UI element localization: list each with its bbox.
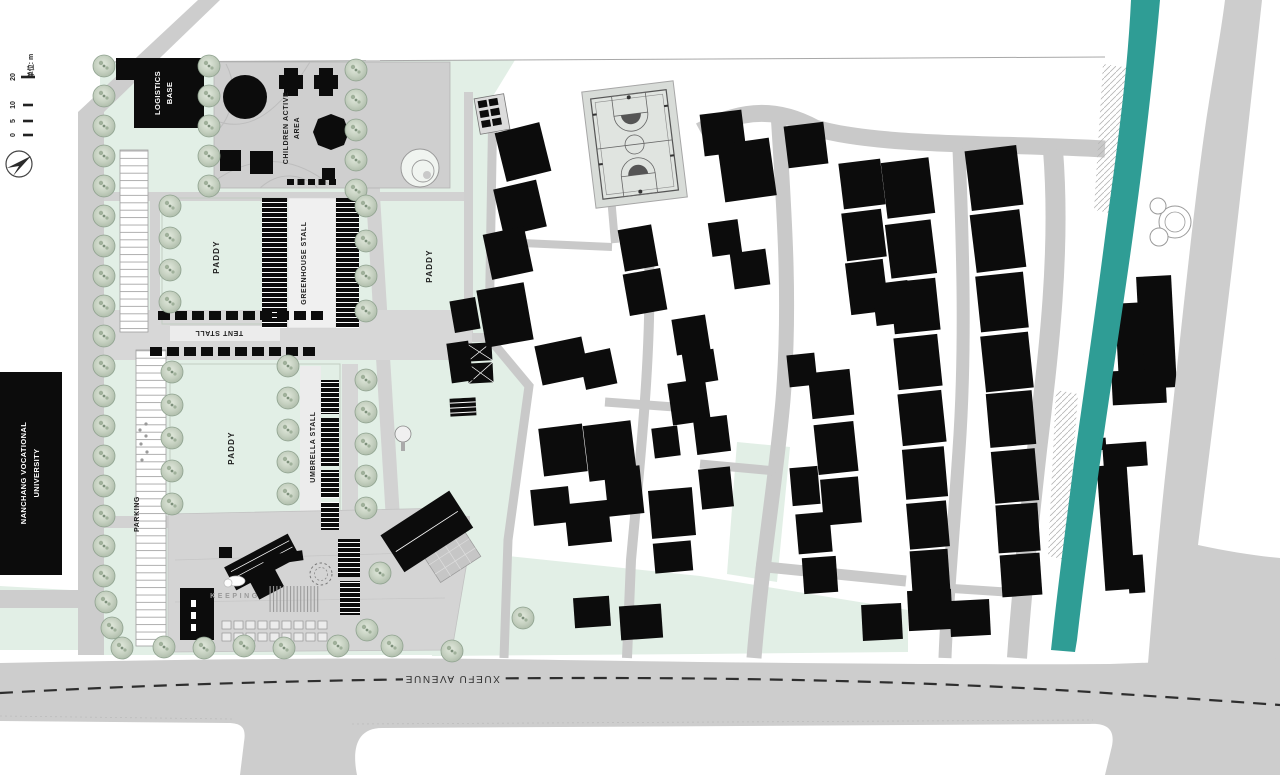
building-footprint	[693, 415, 731, 455]
tree-icon	[345, 89, 367, 111]
label-children-2: AREA	[294, 117, 301, 139]
tree-icon	[93, 535, 115, 557]
keeping-box	[318, 633, 327, 641]
building-footprint	[808, 369, 855, 419]
building-footprint	[730, 249, 771, 290]
building-footprint	[698, 466, 734, 509]
building-footprint	[802, 556, 838, 594]
tree-icon	[93, 295, 115, 317]
tree-icon	[93, 115, 115, 137]
tree-icon	[93, 85, 115, 107]
stall-dash	[319, 179, 326, 185]
site-plan: 0 5 10 20 单位: m LOGISTICS BASE CHILDREN …	[0, 0, 1280, 775]
building-footprint	[573, 596, 611, 628]
tree-icon	[381, 635, 403, 657]
building-footprint	[476, 282, 533, 347]
tree-icon	[159, 227, 181, 249]
tree-icon	[93, 415, 115, 437]
building-footprint	[949, 599, 991, 637]
greenhouse-lane	[288, 198, 336, 328]
tree-icon	[161, 460, 183, 482]
building-footprint	[841, 209, 887, 262]
tree-icon	[198, 85, 220, 107]
tent-stall-unit	[226, 311, 238, 320]
tree-icon	[111, 637, 133, 659]
tent-stall-unit	[311, 311, 323, 320]
keeping-box	[282, 621, 291, 629]
tent-stall-unit	[192, 311, 204, 320]
building-footprint	[653, 540, 693, 573]
building-footprint	[651, 426, 680, 459]
site-plan-canvas: 0 5 10 20 单位: m LOGISTICS BASE CHILDREN …	[0, 0, 1280, 775]
building-footprint	[604, 465, 645, 517]
label-umbrella-stall: UMBRELLA STALL	[310, 411, 317, 483]
stall-dash	[329, 179, 336, 185]
stall-strip-hatch	[321, 502, 339, 530]
building-footprint	[795, 512, 832, 555]
tree-icon	[369, 562, 391, 584]
tree-icon	[193, 637, 215, 659]
tree-icon	[198, 115, 220, 137]
tree-icon	[273, 637, 295, 659]
building-footprint	[564, 500, 612, 546]
tent-stall-unit	[303, 347, 315, 356]
building-footprint	[619, 604, 663, 641]
building-footprint	[717, 138, 777, 203]
keeping-box	[234, 621, 243, 629]
tree-icon	[355, 401, 377, 423]
building-footprint	[970, 209, 1027, 273]
tree-icon	[198, 145, 220, 167]
north-arrow-icon	[6, 151, 32, 177]
label-paddy-2: PADDY	[227, 431, 236, 464]
stall-strip-hatch	[321, 418, 339, 466]
tree-icon	[93, 145, 115, 167]
tree-icon	[161, 427, 183, 449]
scale-tick-10: 10	[10, 101, 17, 109]
building-footprint	[980, 332, 1034, 393]
scale-unit: 单位: m	[26, 54, 35, 79]
tree-icon	[345, 119, 367, 141]
tree-icon	[512, 607, 534, 629]
tree-icon	[93, 55, 115, 77]
label-children-1: CHILDREN ACTIVE	[283, 92, 290, 165]
stall-strip-hatch	[262, 198, 287, 328]
building-footprint	[889, 278, 940, 335]
tree-icon	[198, 55, 220, 77]
building-footprint	[671, 315, 710, 356]
building-footprint	[784, 122, 829, 169]
building-footprint	[538, 423, 588, 476]
building-footprint	[907, 589, 953, 631]
label-tent-stall: TENT STALL	[195, 329, 243, 336]
tree-icon	[355, 300, 377, 322]
building-footprint	[897, 390, 946, 446]
label-logistics-2: BASE	[165, 82, 174, 104]
building-footprint	[1111, 369, 1167, 406]
tree-icon	[277, 451, 299, 473]
tree-icon	[161, 394, 183, 416]
building-footprint	[708, 219, 742, 257]
tent-stall-unit	[252, 347, 264, 356]
tree-icon	[441, 640, 463, 662]
scale-tick-5: 5	[10, 119, 17, 123]
tent-stall-unit	[150, 347, 162, 356]
tree-icon	[93, 475, 115, 497]
building-footprint	[1127, 554, 1146, 593]
tent-stall-unit	[175, 311, 187, 320]
building-footprint	[885, 219, 937, 278]
tree-icon	[93, 385, 115, 407]
label-paddy-3: PADDY	[425, 249, 434, 282]
keeping-box	[258, 633, 267, 641]
tree-icon	[95, 591, 117, 613]
spiral-plaza	[401, 149, 439, 187]
label-parking: PARKING	[134, 496, 141, 532]
tent-stall-unit	[294, 311, 306, 320]
scale-tick-20: 20	[10, 73, 17, 81]
stall-strip-hatch	[321, 470, 339, 498]
grid-pavilion	[474, 94, 510, 135]
stall-dash	[298, 179, 305, 185]
tree-icon	[159, 291, 181, 313]
label-greenhouse-stall: GREENHOUSE STALL	[301, 221, 308, 304]
label-university-1: NANCHANG VOCATIONAL	[19, 422, 28, 524]
scale-tick-0: 0	[10, 133, 17, 137]
building-footprint	[1000, 553, 1043, 598]
building-footprint	[906, 500, 950, 549]
building-footprint	[995, 503, 1040, 554]
keeping-box	[294, 633, 303, 641]
university-building	[0, 372, 62, 575]
keeping-box	[222, 621, 231, 629]
building-footprint	[881, 157, 935, 218]
tent-stall-unit	[167, 347, 179, 356]
tree-icon	[161, 361, 183, 383]
sidewalk-pocket-center	[355, 724, 1113, 775]
building-footprint	[623, 268, 668, 316]
tree-icon	[159, 259, 181, 281]
building-footprint	[893, 334, 942, 390]
tree-icon	[233, 635, 255, 657]
tree-icon	[345, 59, 367, 81]
tent-stall-unit	[269, 347, 281, 356]
tree-icon	[355, 230, 377, 252]
building-footprint	[975, 272, 1029, 333]
tent-stall-unit	[209, 311, 221, 320]
stall-dash	[308, 179, 315, 185]
building-footprint	[618, 224, 659, 271]
tree-icon	[355, 265, 377, 287]
tree-icon	[93, 565, 115, 587]
tree-icon	[355, 369, 377, 391]
label-xuefu-avenue: XUEFU AVENUE	[404, 673, 500, 684]
building-footprint	[965, 145, 1024, 211]
tent-stall-unit	[260, 311, 272, 320]
tent-stall-unit	[201, 347, 213, 356]
tree-icon	[93, 235, 115, 257]
label-logistics-1: LOGISTICS	[153, 71, 162, 115]
tree-icon	[93, 265, 115, 287]
keeping-box	[258, 621, 267, 629]
tree-icon	[101, 617, 123, 639]
tree-icon	[277, 355, 299, 377]
keeping-box	[270, 621, 279, 629]
tree-icon	[355, 465, 377, 487]
tree-icon	[356, 619, 378, 641]
keeping-box	[318, 621, 327, 629]
building-footprint	[838, 159, 885, 210]
tree-icon	[355, 433, 377, 455]
tree-icon	[93, 505, 115, 527]
stall-hatch-array	[268, 586, 320, 612]
keeping-box	[306, 621, 315, 629]
keeping-box	[222, 633, 231, 641]
tree-icon	[93, 445, 115, 467]
building-footprint	[648, 487, 696, 539]
tent-stall-unit	[184, 347, 196, 356]
tree-icon	[93, 205, 115, 227]
tent-stall-unit	[277, 311, 289, 320]
tent-stall-unit	[218, 347, 230, 356]
tree-icon	[153, 636, 175, 658]
building-footprint	[902, 446, 948, 499]
tree-icon	[159, 195, 181, 217]
building-footprint	[813, 421, 858, 475]
tree-icon	[161, 493, 183, 515]
tree-icon	[93, 175, 115, 197]
stall-strip-hatch	[321, 380, 339, 414]
tent-stall-unit	[235, 347, 247, 356]
label-keeping: KEEPING	[210, 593, 260, 600]
tent-stall-unit	[243, 311, 255, 320]
building-footprint	[789, 466, 820, 506]
tree-icon	[277, 387, 299, 409]
keeping-box	[246, 621, 255, 629]
basketball-court	[582, 81, 688, 208]
sidewalk-pocket-left	[0, 721, 245, 775]
tree-icon	[355, 497, 377, 519]
building-footprint	[991, 448, 1039, 504]
tree-icon	[327, 635, 349, 657]
label-paddy-1: PADDY	[212, 240, 221, 273]
tree-icon	[277, 483, 299, 505]
tree-icon	[345, 149, 367, 171]
tree-icon	[198, 175, 220, 197]
building-footprint	[910, 549, 951, 594]
label-university-2: UNIVERSITY	[32, 448, 41, 497]
building-footprint	[449, 297, 480, 333]
tree-icon	[277, 419, 299, 441]
tree-icon	[93, 355, 115, 377]
building-footprint	[986, 390, 1037, 448]
tree-icon	[355, 195, 377, 217]
keeping-box	[294, 621, 303, 629]
west-side-road	[0, 590, 80, 608]
stall-dash	[287, 179, 294, 185]
tree-icon	[93, 325, 115, 347]
keeping-box	[306, 633, 315, 641]
building-footprint	[861, 603, 903, 641]
